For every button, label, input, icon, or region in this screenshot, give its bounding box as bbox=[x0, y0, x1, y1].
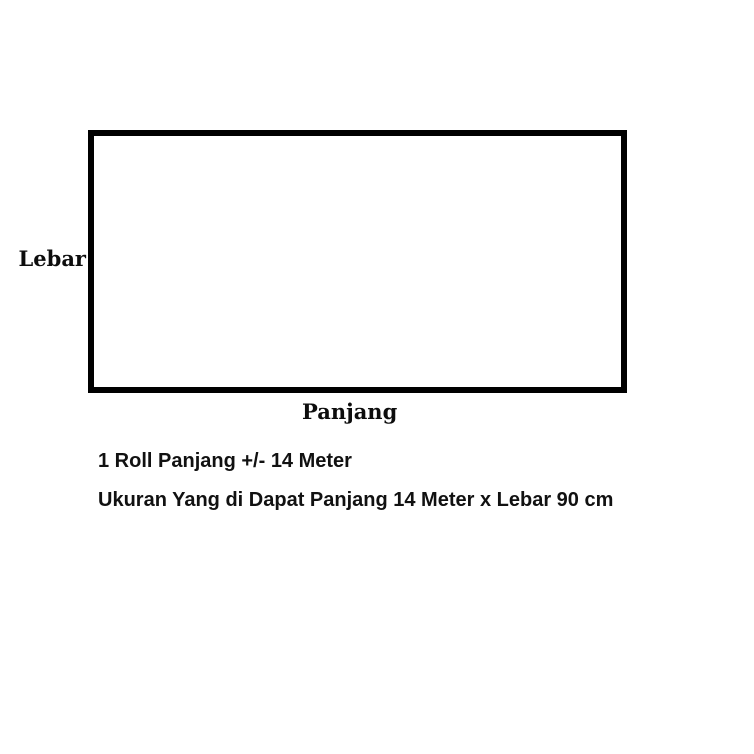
roll-rectangle bbox=[88, 130, 627, 393]
width-label: Lebar bbox=[0, 247, 86, 271]
roll-dimensions-note: Ukuran Yang di Dapat Panjang 14 Meter x … bbox=[98, 488, 613, 512]
size-diagram-canvas: Lebar Panjang 1 Roll Panjang +/- 14 Mete… bbox=[0, 0, 754, 754]
length-label: Panjang bbox=[302, 400, 397, 424]
roll-length-note: 1 Roll Panjang +/- 14 Meter bbox=[98, 449, 352, 473]
